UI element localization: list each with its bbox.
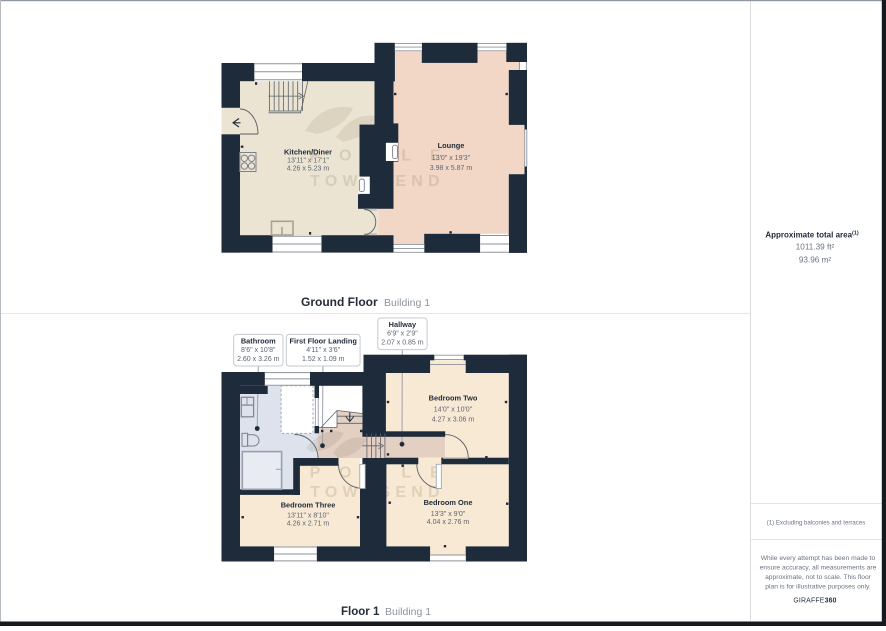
- svg-text:8'6" x 10'8": 8'6" x 10'8": [241, 347, 276, 354]
- svg-text:2.60 x 3.26 m: 2.60 x 3.26 m: [237, 356, 280, 363]
- svg-text:Bedroom Three: Bedroom Three: [281, 501, 336, 510]
- svg-text:Building 1: Building 1: [385, 606, 431, 618]
- svg-text:Building 1: Building 1: [384, 297, 430, 309]
- svg-text:Lounge: Lounge: [438, 141, 465, 150]
- svg-text:4.26 x 2.71 m: 4.26 x 2.71 m: [287, 520, 330, 527]
- svg-text:Floor 1: Floor 1: [341, 606, 380, 618]
- svg-text:4.26 x 5.23 m: 4.26 x 5.23 m: [287, 166, 330, 173]
- svg-text:Approximate total area(1): Approximate total area(1): [765, 231, 858, 240]
- svg-text:(1) Excluding balconies and te: (1) Excluding balconies and terraces: [767, 520, 866, 527]
- svg-text:13'11" x 17'1": 13'11" x 17'1": [287, 158, 329, 165]
- svg-text:Bedroom One: Bedroom One: [424, 498, 473, 507]
- svg-text:13'11" x 8'10": 13'11" x 8'10": [287, 512, 329, 519]
- svg-text:While every attempt has been m: While every attempt has been made to: [761, 555, 876, 562]
- svg-text:GIRAFFE360: GIRAFFE360: [793, 598, 836, 605]
- svg-text:14'0" x 10'0": 14'0" x 10'0": [434, 407, 473, 414]
- svg-text:ensure accuracy, all measureme: ensure accuracy, all measurements are: [760, 565, 877, 572]
- svg-text:4.04 x 2.76 m: 4.04 x 2.76 m: [427, 519, 470, 526]
- svg-text:Hallway: Hallway: [389, 320, 417, 329]
- svg-text:2.07 x 0.85 m: 2.07 x 0.85 m: [381, 340, 424, 347]
- svg-text:approximate, not to scale. Thi: approximate, not to scale. This floor: [765, 574, 872, 581]
- svg-text:13'3" x 9'0": 13'3" x 9'0": [431, 511, 466, 518]
- svg-text:6'9" x 2'9": 6'9" x 2'9": [387, 331, 418, 338]
- svg-text:1.52 x 1.09 m: 1.52 x 1.09 m: [302, 356, 345, 363]
- svg-text:1011.39 ft²: 1011.39 ft²: [796, 243, 835, 252]
- svg-text:13'0" x 19'3": 13'0" x 19'3": [432, 155, 471, 162]
- svg-text:First Floor Landing: First Floor Landing: [290, 336, 358, 345]
- svg-text:Bathroom: Bathroom: [241, 336, 276, 345]
- svg-text:Ground Floor: Ground Floor: [301, 295, 378, 309]
- svg-text:93.96 m²: 93.96 m²: [799, 256, 832, 265]
- svg-text:plan is for illustrative purpo: plan is for illustrative purposes only.: [765, 584, 871, 591]
- svg-text:Kitchen/Diner: Kitchen/Diner: [284, 148, 332, 157]
- svg-text:4'11" x 3'6": 4'11" x 3'6": [306, 347, 340, 354]
- svg-text:Bedroom Two: Bedroom Two: [429, 393, 478, 402]
- svg-text:3.98 x 5.87 m: 3.98 x 5.87 m: [430, 165, 473, 172]
- svg-text:4.27 x 3.06 m: 4.27 x 3.06 m: [432, 416, 475, 423]
